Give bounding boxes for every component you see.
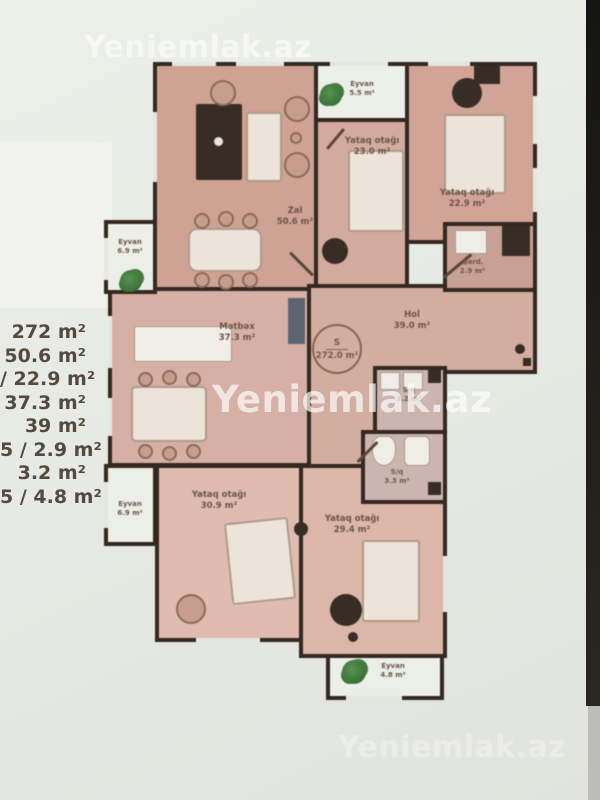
bed-shape [224,517,296,605]
window [108,398,112,436]
chair-shape [186,372,201,387]
appliance-shape [502,226,530,256]
area-list-item: 272 m² [0,321,86,345]
window [330,62,388,66]
round-table-shape [330,594,362,626]
chair-shape [194,272,210,288]
chair-shape [162,446,177,461]
cabinet-shape [428,482,441,495]
room-label-eyvan-left: Eyvan 6.9 m² [106,238,154,256]
area-list-item: 39 m² [0,415,86,439]
room-label-eyvan-bottom: Eyvan 4.8 m² [343,662,443,680]
plant-icon [120,270,142,292]
bed-shape [348,150,404,232]
room-label-bedroom-4: Yataq otağı 29.4 m² [302,514,402,536]
window [428,62,470,66]
cabinet-shape [474,66,500,84]
tv-unit-knob [214,137,223,146]
appliance-shape [455,230,487,254]
fridge-shape [288,298,305,344]
area-list-item: 3.2 m² [0,462,86,486]
room-label-wc-2: S/q 3.3 m² [367,468,427,486]
area-list-item: / 22.9 m² [0,368,86,392]
window [196,638,260,642]
chair-shape [218,274,234,290]
bed-shape [362,540,420,622]
armchair-shape [284,96,310,122]
side-table-shape [290,132,302,144]
room-label-zal: Zal 50.6 m² [250,206,340,228]
window [346,696,402,700]
photo-edge-dark-strip [586,0,600,706]
bed-shape [444,114,506,194]
dining-table-shape [188,228,262,272]
chair-shape [242,272,258,288]
window [153,112,157,182]
window [108,316,112,368]
sink-shape [404,436,430,466]
room-label-bedroom-1: Yataq otağı 23.0 m² [322,136,422,158]
chair-shape [218,211,234,227]
armchair-shape [210,80,236,106]
watermark-middle: Yeniemlak.az [212,378,492,421]
round-table-shape [322,238,348,264]
chair-shape [138,372,153,387]
round-chair-shape [176,594,206,624]
chair-shape [162,370,177,385]
armchair-shape [284,152,310,178]
room-label-hall: Hol 39.0 m² [362,310,462,332]
area-list-item: 37.3 m² [0,392,86,416]
area-list-item: 5 / 2.9 m² [0,439,86,463]
chair-shape [138,444,153,459]
room-label-kitchen: Mətbəx 37.3 m² [187,322,287,344]
round-stool-shape [348,632,358,642]
room-label-eyvan-top: Eyvan 5.5 m² [312,80,412,98]
hall-square-shape [523,358,531,366]
window [533,168,537,212]
window [443,556,447,612]
kitchen-table-shape [131,386,207,442]
area-list-item: 50.6 m² [0,345,86,369]
total-area-stamp: S 272.0 m² [312,324,362,374]
area-measurement-list: 272 m² 50.6 m² / 22.9 m² 37.3 m² 39 m² 5… [0,321,86,509]
sofa-shape [246,112,282,182]
hall-dot-shape [515,344,525,354]
room-label-eyvan-left-bottom: Eyvan 6.9 m² [106,500,154,518]
room-label-bedroom-3: Yataq otağı 30.9 m² [169,490,269,512]
room-label-bedroom-2: Yataq otağı 22.9 m² [417,188,517,210]
window [533,96,537,144]
floorplan-photo: Zal 50.6 m² Eyvan 5.5 m² Yataq otağı 23.… [0,0,600,800]
watermark-top: Yeniemlak.az [84,30,312,65]
photo-edge-gray-strip [588,706,600,800]
stamp-code: S [326,338,348,350]
area-list-item: 5 / 4.8 m² [0,486,86,510]
stamp-total-area: 272.0 m² [316,350,358,361]
room-label-qarderob: Qard. 2.9 m² [445,258,500,276]
chair-shape [194,213,210,229]
watermark-bottom: Yeniemlak.az [338,730,566,765]
chair-shape [186,444,201,459]
